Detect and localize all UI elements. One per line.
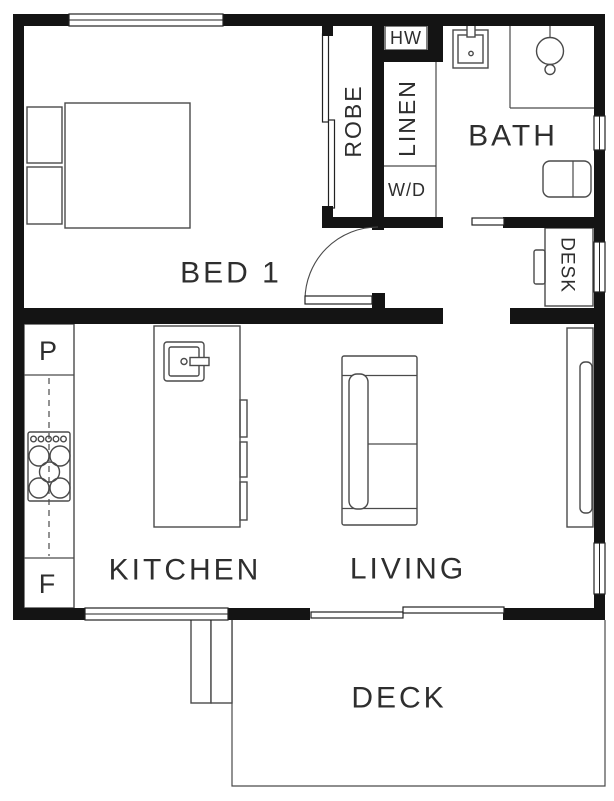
wall-hw-band <box>384 50 428 62</box>
wall-bath-bottom <box>503 217 594 228</box>
label-wd: W/D <box>388 180 426 200</box>
wall-robe-left-top <box>322 26 333 36</box>
label-pantry: P <box>39 336 57 366</box>
wall-robe-left-bottom <box>322 206 333 218</box>
deck-step-right <box>211 618 232 703</box>
wall-door-stub <box>372 293 385 309</box>
label-kitchen: KITCHEN <box>109 554 262 587</box>
label-deck: DECK <box>351 682 446 715</box>
label-robe: ROBE <box>340 84 366 157</box>
sink-faucet <box>190 358 209 366</box>
wall-robe-middle <box>372 26 384 230</box>
wall-right <box>594 14 605 620</box>
wall-desk-divider <box>510 308 594 324</box>
label-linen: LINEN <box>394 79 420 157</box>
label-hw: HW <box>390 28 422 48</box>
label-fridge: F <box>39 569 56 599</box>
wall-bed1-divider <box>13 308 443 324</box>
sofa-backrest <box>349 374 368 509</box>
bed1-door-leaf <box>305 296 372 304</box>
robe-sliding-panel-bottom <box>329 120 335 208</box>
label-living: LIVING <box>350 553 466 586</box>
wall-hw-corner <box>428 26 443 62</box>
label-bed1: BED 1 <box>180 257 282 290</box>
floor-plan: BED 1 BATH KITCHEN LIVING DECK ROBE LINE… <box>0 0 614 801</box>
floor-plan-drawing: BED 1 BATH KITCHEN LIVING DECK ROBE LINE… <box>0 0 614 801</box>
sliding-door-panel-outer <box>311 612 403 618</box>
robe-sliding-panel-top <box>323 34 329 122</box>
bath-sliding-door-leaf <box>472 218 504 225</box>
wall-robe-bottom <box>322 217 443 228</box>
label-bath: BATH <box>468 120 558 153</box>
sliding-door-panel-inner <box>403 607 504 613</box>
deck-step-left <box>191 618 211 703</box>
label-desk: DESK <box>557 237 578 293</box>
